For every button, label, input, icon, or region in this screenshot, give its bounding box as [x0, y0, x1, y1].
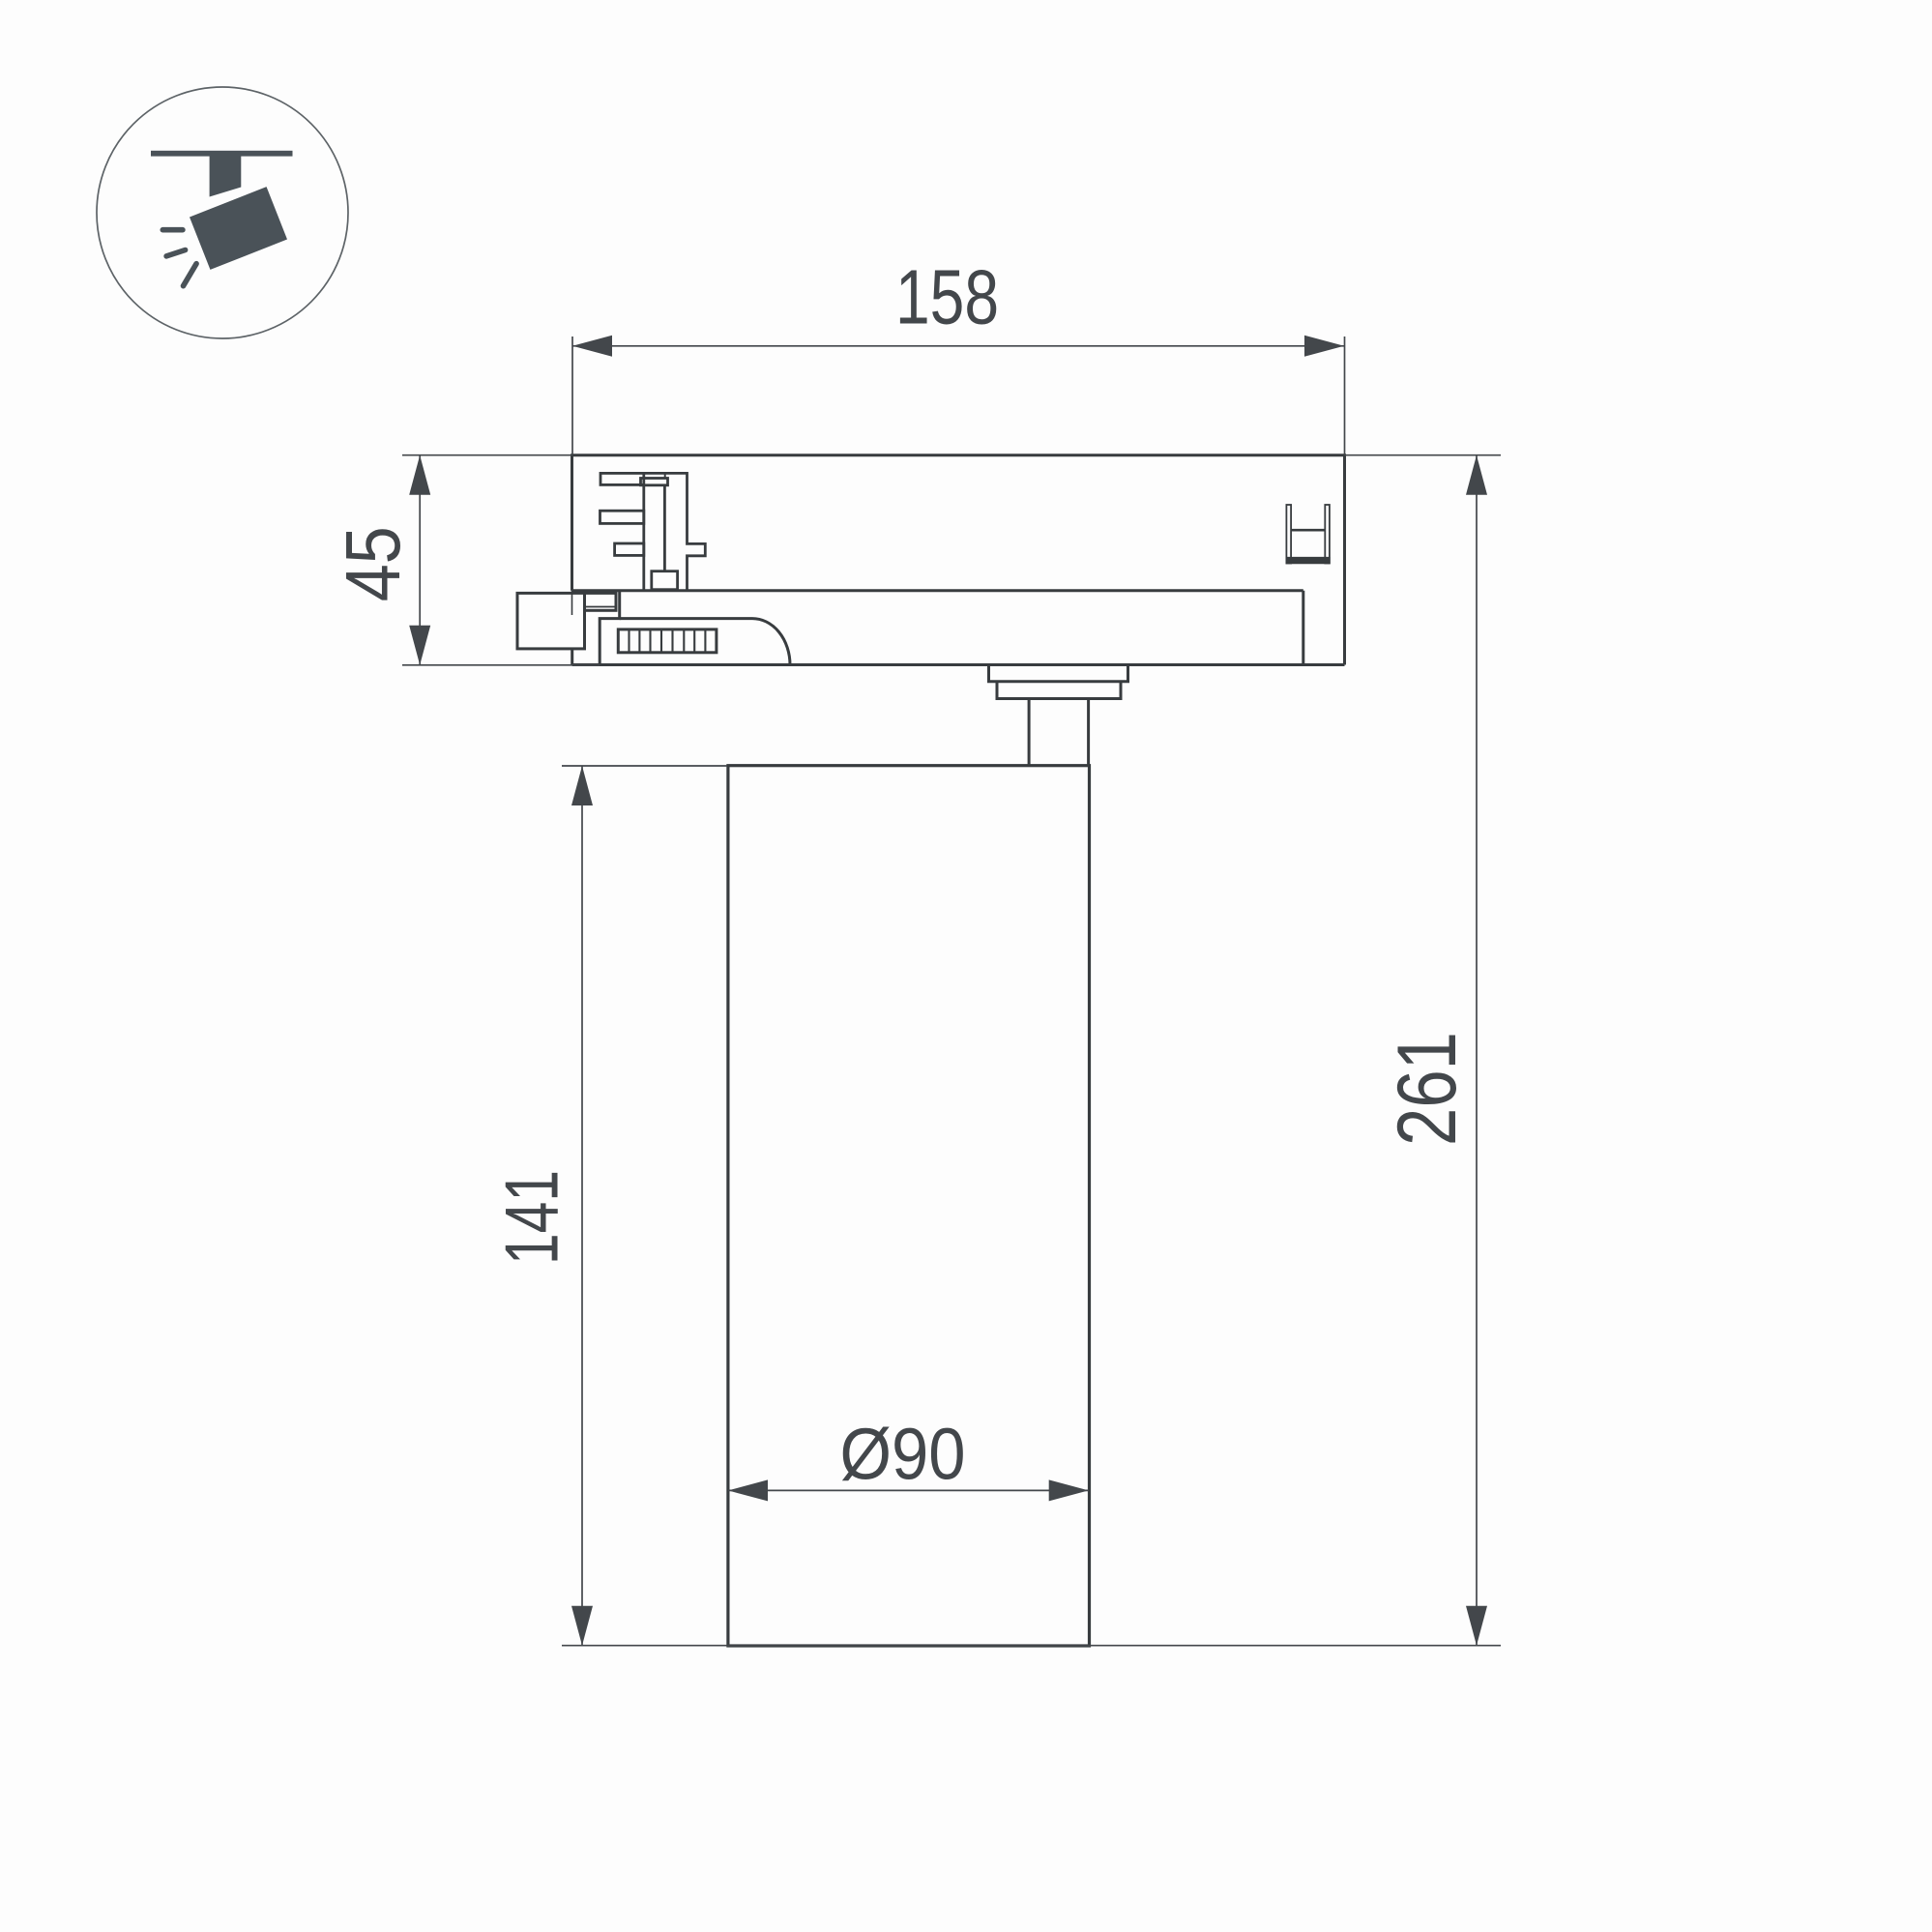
svg-text:45: 45	[330, 526, 416, 601]
svg-text:141: 141	[488, 1170, 573, 1265]
svg-text:158: 158	[895, 254, 999, 340]
svg-text:261: 261	[1381, 1032, 1474, 1146]
svg-text:Ø90: Ø90	[840, 1413, 966, 1494]
